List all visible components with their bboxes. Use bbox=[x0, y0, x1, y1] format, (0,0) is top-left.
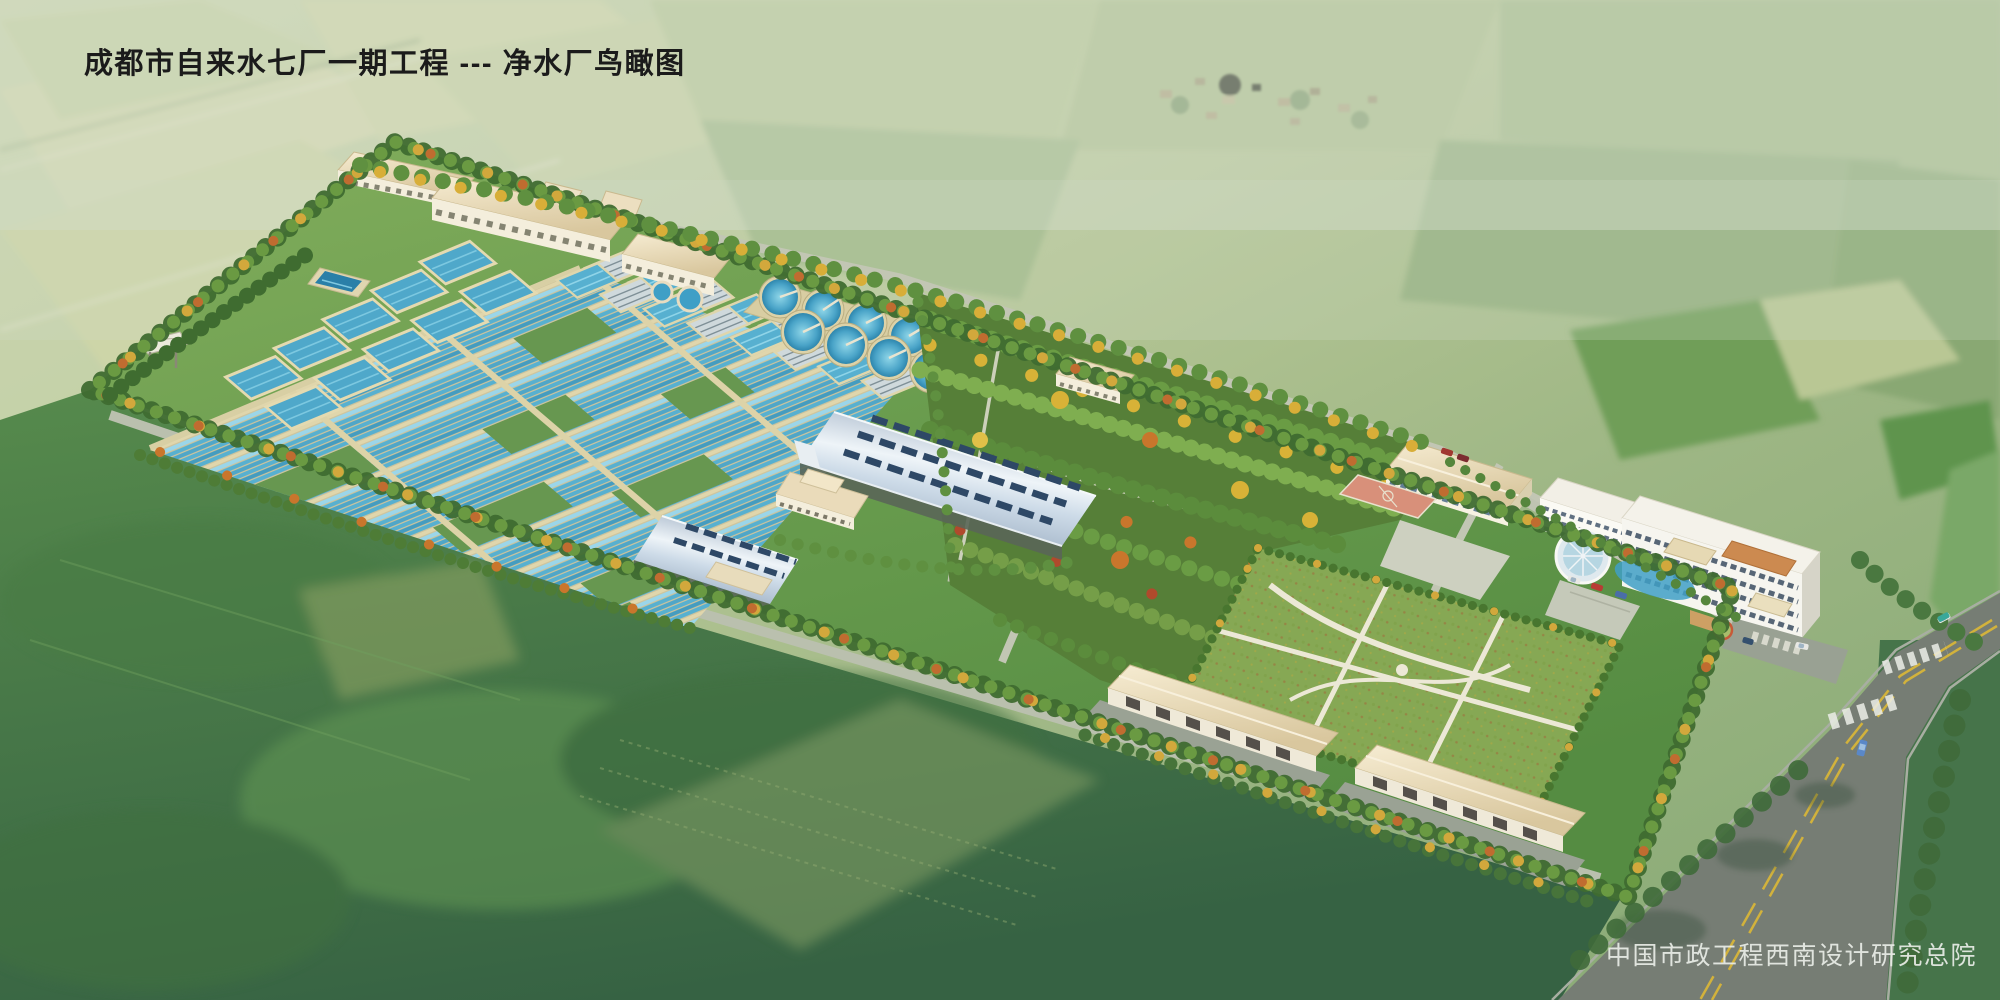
design-institute-credit: 中国市政工程西南设计研究总院 bbox=[1606, 936, 1977, 972]
birdseye-rendering-canvas bbox=[0, 0, 2000, 1000]
round-tank bbox=[652, 282, 672, 302]
project-title: 成都市自来水七厂一期工程 --- 净水厂鸟瞰图 bbox=[84, 40, 686, 82]
orchard-tree bbox=[972, 432, 988, 448]
round-tank bbox=[678, 287, 702, 311]
screenshot-root: 成都市自来水七厂一期工程 --- 净水厂鸟瞰图 中国市政工程西南设计研究总院 bbox=[0, 0, 2000, 1000]
